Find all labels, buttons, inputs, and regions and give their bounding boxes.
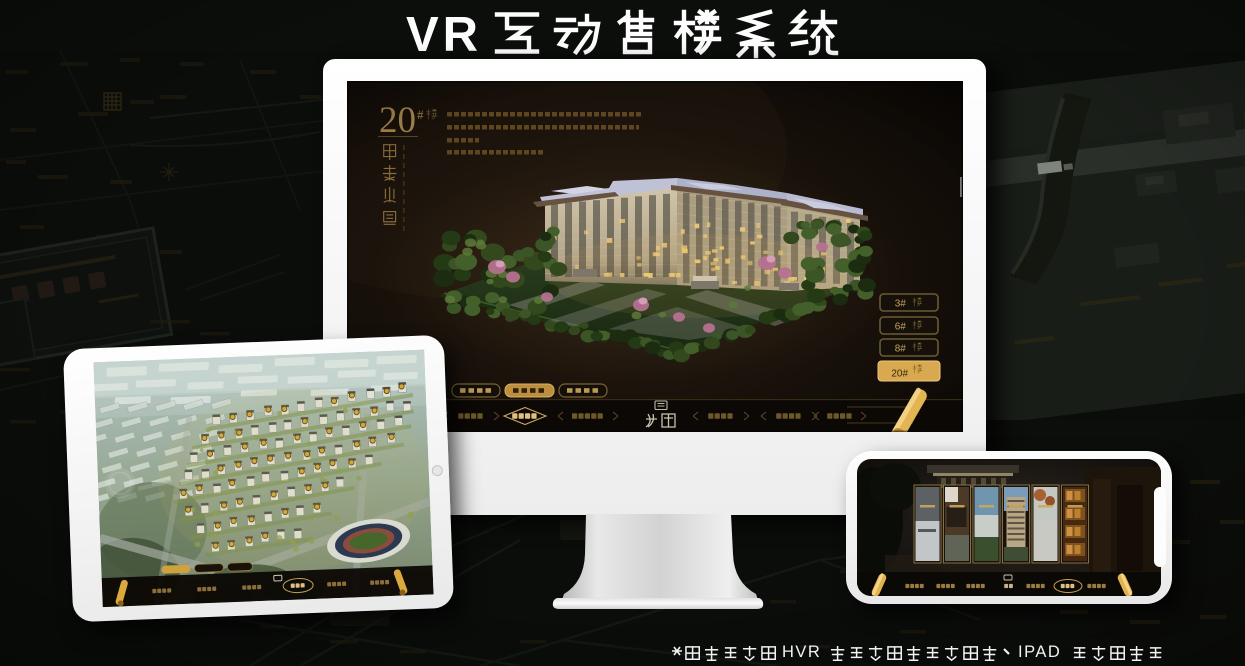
svg-text:8#: 8# — [895, 344, 907, 355]
svg-text:IPAD: IPAD — [1018, 643, 1061, 661]
svg-text:20#: 20# — [891, 369, 908, 380]
svg-text:VR: VR — [406, 8, 482, 60]
svg-text:HVR: HVR — [782, 643, 821, 661]
svg-text:3#: 3# — [895, 299, 907, 310]
svg-text:6#: 6# — [895, 322, 907, 333]
